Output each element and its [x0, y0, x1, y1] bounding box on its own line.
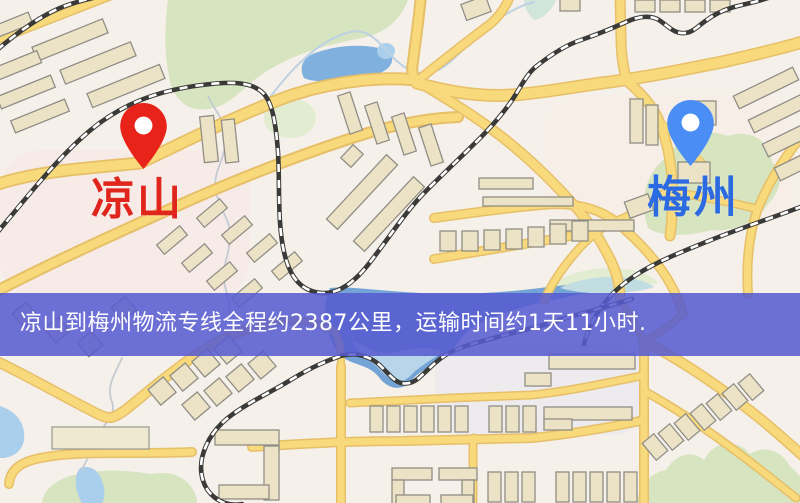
origin-pin [120, 103, 167, 169]
destination-label: 梅州 [608, 175, 778, 221]
red-map-pin-icon [120, 103, 167, 169]
map-canvas [0, 0, 800, 503]
origin-label: 凉山 [52, 177, 222, 223]
map-screenshot: 凉山 梅州 凉山到梅州物流专线全程约2387公里，运输时间约1天11小时. [0, 0, 800, 503]
route-info-text: 凉山到梅州物流专线全程约2387公里，运输时间约1天11小时. [0, 305, 646, 337]
blue-map-pin-icon [667, 100, 714, 166]
route-info-banner: 凉山到梅州物流专线全程约2387公里，运输时间约1天11小时. [0, 293, 800, 356]
destination-pin [667, 100, 714, 166]
